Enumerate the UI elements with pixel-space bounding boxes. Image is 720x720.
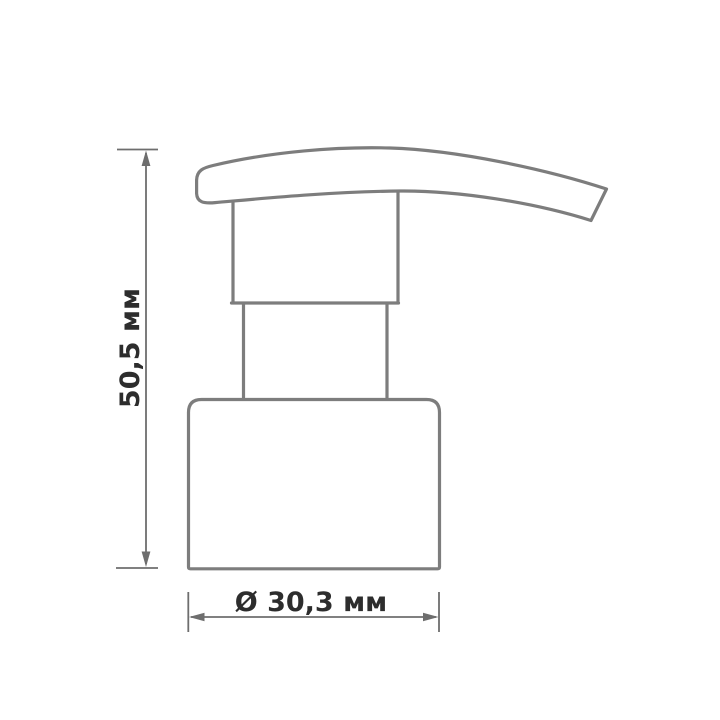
height-arrow-up-icon	[142, 151, 151, 167]
pump-lever-shape	[197, 148, 607, 221]
diameter-dimension-label: Ø 30,3 мм	[235, 587, 388, 618]
diameter-arrow-left-icon	[189, 613, 205, 622]
pump-outline-group	[189, 148, 607, 569]
pump-stem-shape	[244, 304, 388, 398]
pump-neck-shape	[232, 192, 399, 304]
height-dimension-label: 50,5 мм	[115, 288, 146, 408]
height-arrow-down-icon	[142, 552, 151, 568]
product-dimension-diagram: 50,5 мм Ø 30,3 мм	[0, 0, 720, 720]
diameter-arrow-right-icon	[423, 613, 439, 622]
pump-cap-shape	[189, 400, 440, 569]
height-dimension-group: 50,5 мм	[115, 150, 158, 569]
diameter-dimension-group: Ø 30,3 мм	[188, 587, 439, 632]
pump-drawing-canvas: 50,5 мм Ø 30,3 мм	[0, 0, 720, 720]
